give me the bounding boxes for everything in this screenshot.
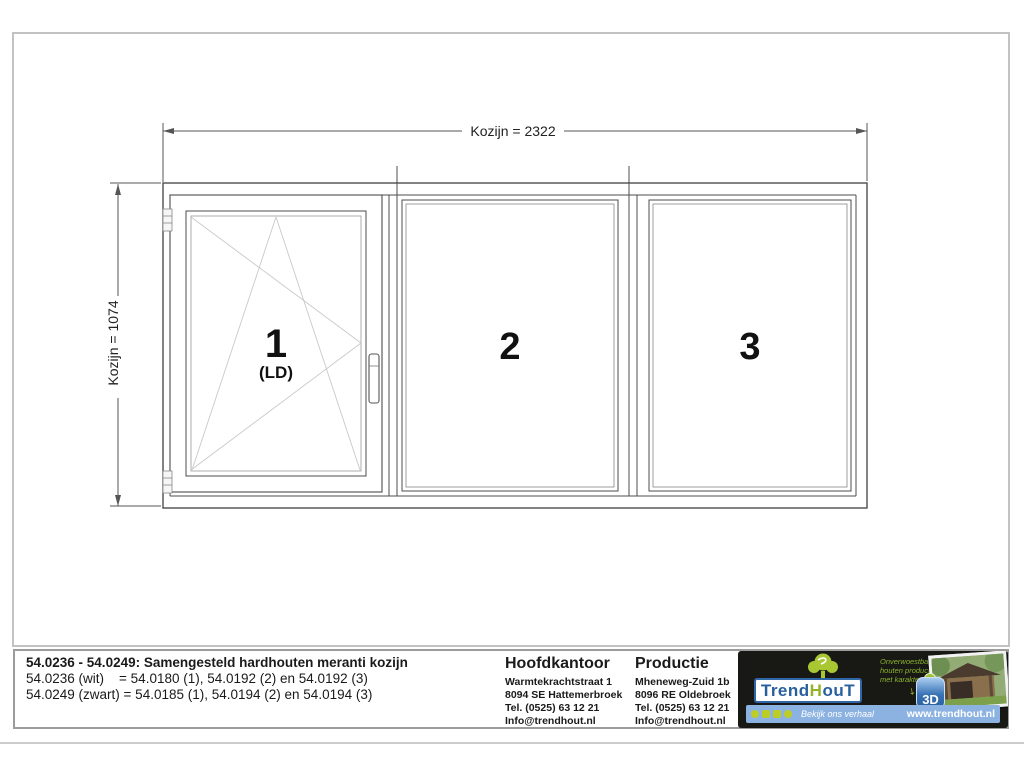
sheet-title: 54.0236 - 54.0249: Samengesteld hardhout… bbox=[26, 654, 408, 671]
dimension-width-label: Kozijn = 2322 bbox=[470, 123, 555, 139]
window-handle bbox=[369, 354, 379, 403]
productie-heading: Productie bbox=[635, 654, 731, 673]
panel-3-label: 3 bbox=[739, 326, 760, 368]
wordmark-out: ouT bbox=[822, 681, 855, 701]
page-bottom-divider bbox=[0, 742, 1024, 744]
hoofdkantoor-email: Info@trendhout.nl bbox=[505, 715, 622, 728]
hoofdkantoor-address2: 8094 SE Hattemerbroek bbox=[505, 689, 622, 702]
productie-column: Productie Mheneweg-Zuid 1b 8096 RE Oldeb… bbox=[635, 654, 731, 728]
hoofdkantoor-column: Hoofdkantoor Warmtekrachtstraat 1 8094 S… bbox=[505, 654, 622, 728]
panel-1-sublabel: (LD) bbox=[259, 363, 293, 382]
panel-2-label: 2 bbox=[499, 326, 520, 368]
productie-address2: 8096 RE Oldebroek bbox=[635, 689, 731, 702]
article-info: 54.0236 - 54.0249: Samengesteld hardhout… bbox=[26, 654, 408, 703]
scanned-drawing-sheet: { "drawing": { "dim_width_label": "Kozij… bbox=[0, 0, 1024, 768]
productie-tel: Tel. (0525) 63 12 21 bbox=[635, 702, 731, 715]
dimension-height-label: Kozijn = 1074 bbox=[105, 300, 121, 385]
trendhout-wordmark: TrendHouT bbox=[754, 678, 862, 703]
social-icon-1 bbox=[751, 710, 759, 718]
productie-email: Info@trendhout.nl bbox=[635, 715, 731, 728]
tree-logo-icon bbox=[804, 652, 842, 680]
wordmark-h: H bbox=[810, 681, 823, 701]
variant-zwart-line: 54.0249 (zwart) = 54.0185 (1), 54.0194 (… bbox=[26, 687, 408, 703]
strip-tagline: Bekijk ons verhaal bbox=[801, 709, 874, 719]
panel-1-label: 1 bbox=[265, 322, 287, 366]
website-url: www.trendhout.nl bbox=[907, 708, 995, 720]
logo-bottom-strip: Bekijk ons verhaal www.trendhout.nl bbox=[746, 705, 1000, 723]
wordmark-trend: Trend bbox=[761, 681, 810, 701]
hoofdkantoor-tel: Tel. (0525) 63 12 21 bbox=[505, 702, 622, 715]
productie-address1: Mheneweg-Zuid 1b bbox=[635, 676, 731, 689]
social-icon-4 bbox=[784, 710, 792, 718]
variant-wit-line: 54.0236 (wit) = 54.0180 (1), 54.0192 (2)… bbox=[26, 671, 408, 687]
title-block: 54.0236 - 54.0249: Samengesteld hardhout… bbox=[13, 649, 1009, 729]
hoofdkantoor-address1: Warmtekrachtstraat 1 bbox=[505, 676, 622, 689]
social-icon-3 bbox=[773, 710, 781, 718]
trendhout-logo-panel: TrendHouT Onverwoestbare houten producte… bbox=[738, 651, 1008, 728]
hoofdkantoor-heading: Hoofdkantoor bbox=[505, 654, 622, 673]
social-icon-2 bbox=[762, 710, 770, 718]
